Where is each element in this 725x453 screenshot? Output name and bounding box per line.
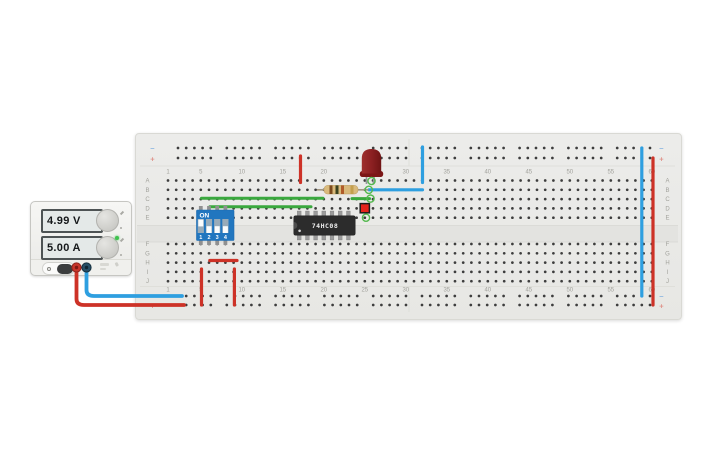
psu-marking — [100, 263, 109, 266]
power-toggle[interactable] — [42, 262, 75, 275]
breadboard[interactable] — [135, 133, 682, 320]
power-supply[interactable]: 4.99 V 5.00 A — [30, 201, 132, 276]
voltage-knob[interactable] — [96, 209, 119, 232]
voltage-display: 4.99 V — [41, 209, 103, 233]
psu-marking — [100, 268, 106, 271]
tinkercad-canvas: 4.99 V 5.00 A 11551010151520202525303035… — [0, 0, 725, 453]
power-toggle-knob[interactable] — [57, 264, 73, 274]
current-display: 5.00 A — [41, 236, 103, 260]
power-indicator-led — [115, 236, 119, 240]
